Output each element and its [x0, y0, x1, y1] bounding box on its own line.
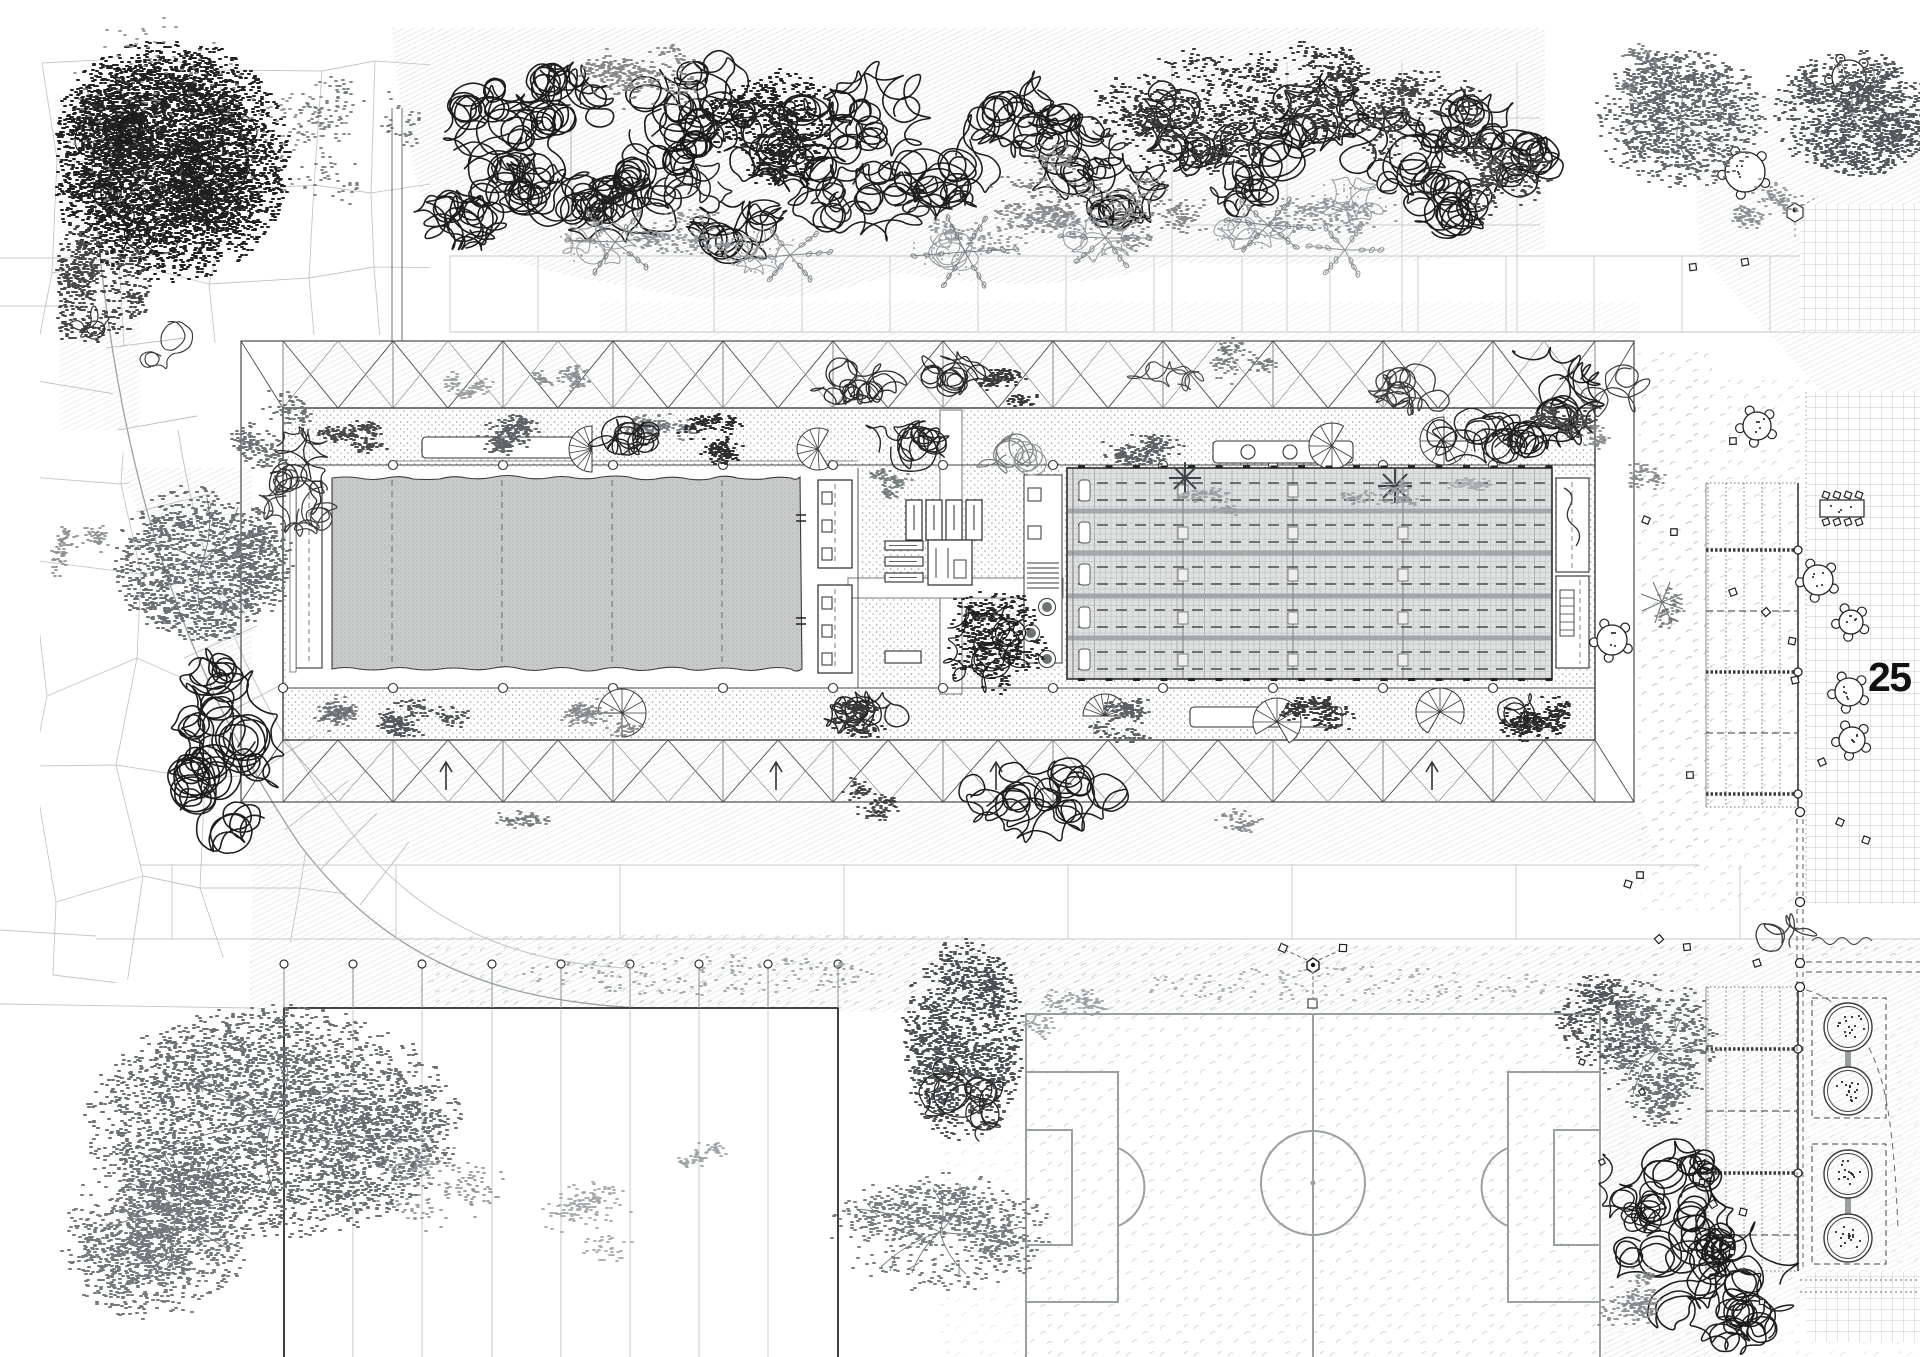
svg-text:25: 25: [1868, 654, 1911, 700]
